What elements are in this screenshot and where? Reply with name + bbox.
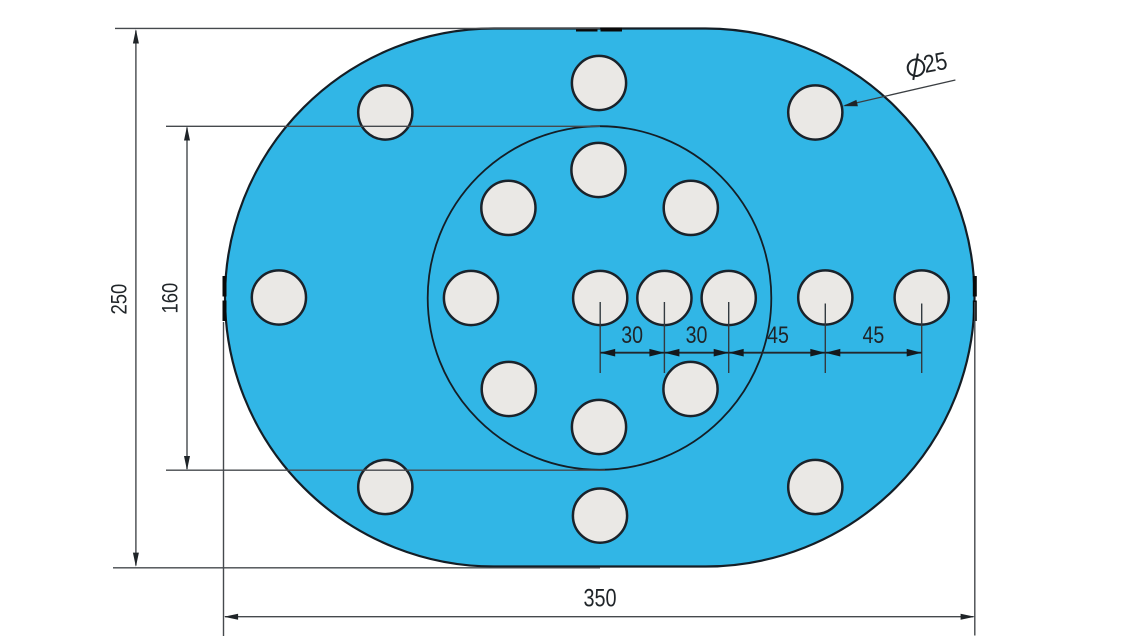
svg-text:30: 30: [686, 321, 708, 349]
svg-text:45: 45: [863, 321, 885, 349]
svg-text:45: 45: [767, 321, 789, 349]
svg-text:30: 30: [621, 321, 643, 349]
svg-text:250: 250: [108, 284, 132, 315]
svg-text:350: 350: [583, 584, 616, 612]
svg-text:160: 160: [159, 283, 183, 314]
